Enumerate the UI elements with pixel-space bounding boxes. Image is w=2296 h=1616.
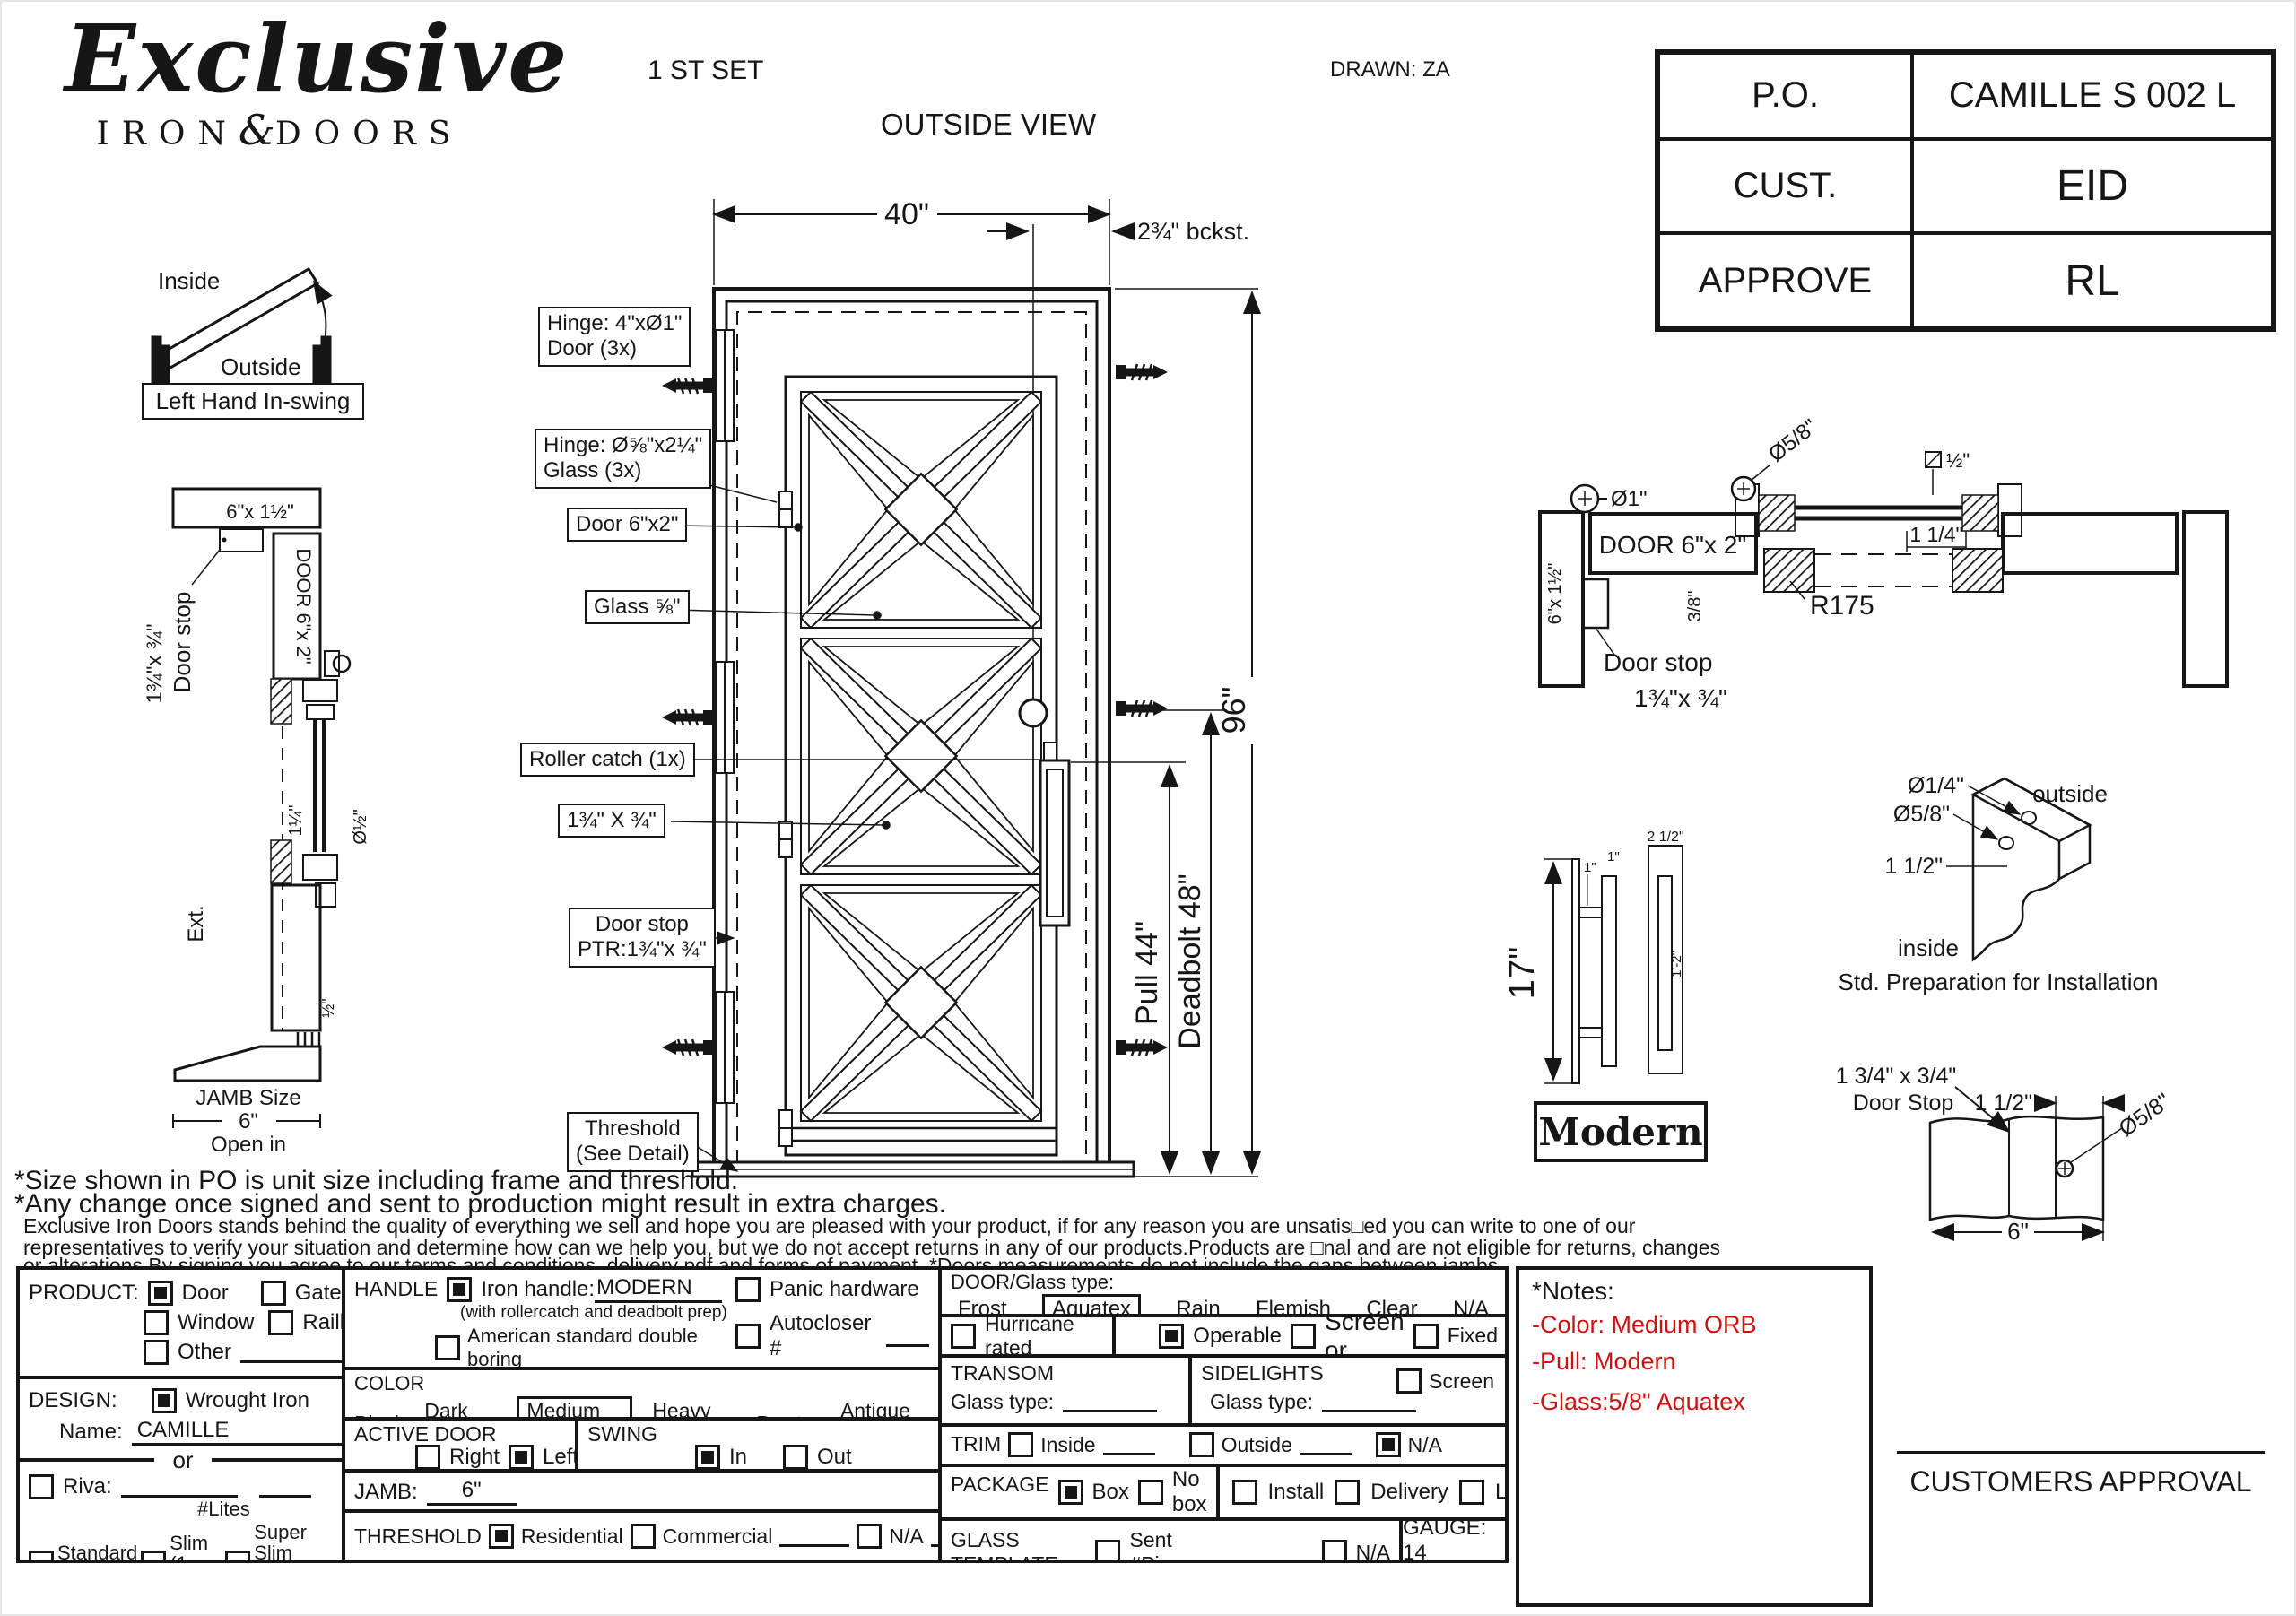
riva-label: Riva: — [63, 1474, 112, 1499]
left-jamb-section: 6"x 1½" Door stop 1¾"x ¾" DOOR 6"x 2" 1¼… — [143, 489, 370, 1157]
sidelights-glass-field[interactable] — [1322, 1392, 1416, 1412]
product-gate-label: Gate — [295, 1281, 342, 1306]
template-sent-field[interactable] — [1234, 1542, 1313, 1563]
hinge-door-line2: Door (3x) — [547, 336, 682, 361]
head-radius-label: R175 — [1810, 591, 1874, 621]
prep-detail: Ø1/4" Ø5/8" 1 1/2" outside inside Std. P… — [1839, 773, 2159, 995]
note-color: -Color: Medium ORB — [1532, 1311, 1857, 1339]
head-114-dim: 1 1/4" — [1909, 523, 1962, 546]
color-section: COLOR Black Dark ORB Medium ORB Heavy OR… — [342, 1367, 942, 1421]
product-section: PRODUCT: Door Gate Window Railling Other — [16, 1266, 345, 1379]
product-other-label: Other — [178, 1340, 231, 1365]
drawing-sheet: Exclusive IRON&DOORS 1 ST SET OUTSIDE VI… — [0, 0, 2296, 1616]
checkbox-screen[interactable] — [1291, 1324, 1316, 1349]
stopdetail-112: 1 1/2" — [1975, 1090, 2032, 1116]
glass-type-label: DOOR/Glass type: — [951, 1271, 1496, 1294]
gauge-section: GAUGE: 14 — [1399, 1517, 1509, 1563]
head-half-label: ½" — [1946, 449, 1970, 472]
super-slim-option: Super Slim(1/2”) SDL — [254, 1522, 333, 1563]
note-line-3: Exclusive Iron Doors stands behind the q… — [23, 1214, 1635, 1238]
swing-in-label: In — [729, 1445, 747, 1470]
product-window-label: Window — [178, 1310, 254, 1335]
jamb-value[interactable]: 6" — [427, 1478, 517, 1506]
prep-d14-label: Ø1/4" — [1908, 773, 1964, 798]
open-in-label: Open in — [211, 1133, 286, 1157]
jamb-size-label: JAMB Size — [196, 1086, 300, 1110]
head-38-dim: 3/8" — [1685, 591, 1705, 622]
swing-outside-label: Outside — [221, 353, 301, 380]
design-name-value[interactable]: CAMILLE — [132, 1418, 345, 1446]
checkbox-product-door[interactable] — [148, 1281, 173, 1306]
checkbox-trim-na[interactable] — [1376, 1432, 1401, 1457]
package-install-label: Install — [1268, 1480, 1325, 1505]
checkbox-package-box[interactable] — [1058, 1480, 1083, 1505]
checkbox-template-sent[interactable] — [1095, 1540, 1120, 1563]
handle-sub-note: (with rollercatch and deadbolt prep) — [460, 1303, 727, 1323]
head-door-size: DOOR 6"x 2" — [1599, 531, 1747, 559]
trim-outside-label: Outside — [1222, 1433, 1292, 1457]
package-delivery-label: Delivery — [1370, 1480, 1448, 1505]
swing-diagram: Inside Outside — [152, 267, 330, 386]
left-half-dim: ½" — [319, 998, 337, 1017]
trim-inside-field[interactable] — [1103, 1435, 1155, 1455]
design-wrought-label: Wrought Iron — [186, 1388, 309, 1413]
product-railling-label: Railling — [302, 1310, 345, 1335]
standard-option: Standard(1 1/2”) — [57, 1542, 137, 1563]
swing-out-label: Out — [817, 1445, 852, 1470]
product-label: PRODUCT: — [29, 1281, 139, 1306]
head-doorstop-label: Door stop — [1604, 648, 1712, 676]
glass-template-section: GLASS TEMPLATE Sent #Pieces: N/A — [938, 1517, 1403, 1563]
autocloser-label: Autocloser # — [770, 1311, 877, 1361]
autocloser-field[interactable] — [886, 1326, 929, 1347]
checkbox-package-delivery[interactable] — [1335, 1480, 1360, 1505]
callout-hinge-glass: Hinge: Ø⅝"x2¼" Glass (3x) — [535, 429, 711, 489]
package-box-label: Box — [1092, 1480, 1129, 1505]
package-ltl-label: LTL — [1495, 1480, 1509, 1505]
trim-outside-field[interactable] — [1300, 1435, 1352, 1455]
left-ext-label: Ext. — [184, 905, 208, 942]
threshold-section: THRESHOLD Residential Commercial N/A — [342, 1509, 942, 1563]
head-doorstop-size: 1¾"x ¾" — [1634, 684, 1727, 712]
trim-na-label: N/A — [1408, 1433, 1442, 1457]
glass-type-section: DOOR/Glass type: Frost Aquatex Rain Flem… — [938, 1266, 1509, 1317]
prep-112-label: 1 1/2" — [1885, 854, 1943, 879]
head-d1-label: Ø1" — [1611, 487, 1648, 511]
backset-dim: 2¾" bckst. — [1137, 218, 1249, 245]
pull-height-label: 17" — [1502, 947, 1542, 1000]
stopdetail-d58: Ø5/8" — [2115, 1089, 2176, 1142]
callout-roller-catch: Roller catch (1x) — [520, 743, 695, 777]
active-door-label: ACTIVE DOOR — [354, 1422, 566, 1447]
threshold-na-label: N/A — [889, 1525, 923, 1549]
callout-door-size: Door 6"x2" — [567, 508, 687, 542]
prep-caption: Std. Preparation for Installation — [1839, 969, 2159, 995]
template-sent-label: Sent #Pieces: — [1129, 1528, 1224, 1563]
trim-label: TRIM — [951, 1432, 1001, 1456]
door-elevation: 40" 2¾" bckst. — [662, 197, 1258, 1177]
left-head-size: 6"x 1½" — [226, 500, 294, 523]
transom-label: TRANSOM — [951, 1361, 1179, 1386]
template-na-label: N/A — [1356, 1541, 1390, 1564]
deadbolt-height-dim: Deadbolt 48" — [1173, 873, 1207, 1048]
stopdetail-title2: Door Stop — [1853, 1090, 1954, 1116]
left-dim-d12: Ø½" — [351, 809, 370, 844]
panic-hardware-label: Panic hardware — [770, 1277, 919, 1302]
standard-size: (1 1/2”) — [57, 1562, 121, 1563]
head-section: Ø1" DOOR 6"x 2" Ø5/8" ½" 1 1/4" — [1540, 414, 2227, 712]
doorstop-detail: 1 1/2" Ø5/8" 6" 1 3/4" x 3/4" Door Stop — [1836, 1064, 2176, 1245]
trim-section: TRIM Inside Outside N/A — [938, 1423, 1509, 1467]
active-left-label: Left — [543, 1445, 578, 1470]
sidelights-screen-label: Screen — [1429, 1369, 1494, 1394]
swing-inside-label: Inside — [158, 267, 220, 294]
pull-model-name: Modern — [1534, 1101, 1708, 1162]
checkbox-package-install[interactable] — [1232, 1480, 1257, 1505]
checkbox-iron-handle[interactable] — [447, 1277, 472, 1302]
package-nobox-label: No box — [1172, 1467, 1207, 1517]
swing-caption: Left Hand In-swing — [142, 383, 364, 420]
head-d58-label: Ø5/8" — [1764, 414, 1822, 467]
slim-label: Slim — [170, 1532, 208, 1554]
design-name-label: Name: — [59, 1420, 123, 1445]
notes-box: *Notes: -Color: Medium ORB -Pull: Modern… — [1516, 1266, 1873, 1607]
riva-field-2[interactable] — [259, 1477, 311, 1498]
threshold-residential-label: Residential — [521, 1525, 623, 1549]
handle-label: HANDLE — [354, 1277, 438, 1301]
american-boring-label: American standard double boring — [467, 1325, 735, 1370]
left-doorstop-size: 1¾"x ¾" — [143, 623, 167, 703]
checkbox-product-window[interactable] — [143, 1310, 169, 1335]
stopdetail-6: 6" — [2007, 1218, 2029, 1245]
threshold-line2: (See Detail) — [576, 1142, 690, 1167]
iron-handle-value[interactable]: MODERN — [595, 1275, 722, 1303]
transom-sidelights-section: TRANSOM Glass type: SIDELIGHTS Glass typ… — [938, 1354, 1509, 1427]
checkbox-trim-outside[interactable] — [1189, 1432, 1214, 1457]
hinge-glass-line1: Hinge: Ø⅝"x2¼" — [544, 433, 702, 458]
prep-outside-label: outside — [2032, 780, 2108, 807]
threshold-commercial-field[interactable] — [779, 1526, 849, 1547]
jamb-label: JAMB: — [354, 1480, 418, 1505]
checkbox-hurricane[interactable] — [951, 1324, 976, 1349]
design-label: DESIGN: — [29, 1388, 117, 1413]
prep-d58-label: Ø5/8" — [1893, 802, 1950, 827]
threshold-line1: Threshold — [576, 1116, 690, 1142]
package-section: PACKAGE Box No box Install Delivery LTL — [938, 1464, 1509, 1521]
slim-option: Slim(1 1/4”) — [170, 1533, 222, 1563]
checkbox-swing-out[interactable] — [783, 1445, 808, 1470]
active-swing-section: ACTIVE DOOR Right Left SWING In Out — [342, 1417, 942, 1473]
checkbox-active-right[interactable] — [415, 1445, 440, 1470]
product-other-field[interactable] — [240, 1342, 345, 1363]
left-door-size: DOOR 6"x 2" — [292, 548, 315, 664]
riva-field[interactable] — [121, 1477, 238, 1498]
checkbox-product-gate[interactable] — [261, 1281, 286, 1306]
checkbox-design-wrought-iron[interactable] — [152, 1388, 177, 1413]
checkbox-product-railling[interactable] — [268, 1310, 293, 1335]
fixed-label: Fixed — [1448, 1324, 1498, 1348]
jamb-size-value: 6" — [239, 1109, 258, 1134]
threshold-label: THRESHOLD — [354, 1525, 482, 1549]
hurricane-operable-section: Hurricane rated Operable Screen or Fixed — [938, 1314, 1509, 1358]
operable-label: Operable — [1193, 1324, 1282, 1349]
super-slim-label: Super Slim — [254, 1521, 307, 1563]
checkbox-threshold-na[interactable] — [857, 1524, 882, 1549]
checkbox-swing-in[interactable] — [695, 1445, 720, 1470]
trim-inside-label: Inside — [1040, 1433, 1095, 1457]
callout-door-stop: Door stop PTR:1¾"x ¾" — [569, 908, 716, 968]
product-door-label: Door — [182, 1281, 229, 1306]
pull-height-dim: Pull 44" — [1130, 921, 1164, 1025]
transom-glass-field[interactable] — [1063, 1392, 1157, 1412]
screen-or-label: Screen or — [1325, 1314, 1405, 1358]
callout-threshold: Threshold (See Detail) — [567, 1112, 699, 1172]
iron-handle-label: Iron handle: — [481, 1277, 595, 1302]
pull-detail: 17" 1" 1" 2 1/2" 1'-2" — [1502, 830, 1684, 1083]
left-dim-114: 1¼" — [286, 805, 306, 837]
checkbox-fixed[interactable] — [1413, 1324, 1439, 1349]
handle-section: HANDLE Iron handle:MODERN (with rollerca… — [342, 1266, 942, 1370]
checkbox-riva[interactable] — [29, 1474, 54, 1499]
door-stop-line1: Door stop — [578, 912, 707, 937]
gauge-value: GAUGE: 14 — [1403, 1517, 1505, 1563]
glass-template-label: GLASS TEMPLATE — [951, 1528, 1086, 1563]
checkbox-product-other[interactable] — [143, 1340, 169, 1365]
color-label: COLOR — [354, 1372, 929, 1395]
lites-label: #Lites — [197, 1498, 250, 1521]
checkbox-sidelights-screen[interactable] — [1396, 1368, 1422, 1394]
approval-signature-line[interactable] — [1897, 1451, 2265, 1454]
hurricane-label: Hurricane rated — [985, 1314, 1103, 1358]
checkbox-autocloser[interactable] — [735, 1324, 761, 1349]
stopdetail-title1: 1 3/4" x 3/4" — [1836, 1064, 1957, 1089]
package-label: PACKAGE — [951, 1473, 1049, 1497]
note-glass: -Glass:5/8" Aquatex — [1532, 1388, 1857, 1416]
callout-hinge-door: Hinge: 4"xØ1" Door (3x) — [538, 307, 691, 367]
transom-glass-label: Glass type: — [951, 1390, 1054, 1414]
door-width-dim: 40" — [884, 197, 929, 231]
standard-label: Standard — [57, 1542, 137, 1563]
checkbox-super-slim[interactable] — [225, 1551, 250, 1563]
pull-inner-dim: 1'-2" — [1669, 951, 1684, 977]
checkbox-standard[interactable] — [29, 1551, 54, 1563]
callout-glass-size: Glass ⅝" — [585, 590, 690, 624]
notes-title: *Notes: — [1532, 1277, 1857, 1306]
checkbox-threshold-residential[interactable] — [489, 1524, 514, 1549]
left-doorstop-label: Door stop — [169, 592, 196, 693]
design-or-label: or — [154, 1446, 212, 1474]
door-stop-line2: PTR:1¾"x ¾" — [578, 937, 707, 962]
checkbox-threshold-commercial[interactable] — [631, 1524, 656, 1549]
checkbox-package-ltl[interactable] — [1459, 1480, 1484, 1505]
sidelights-glass-label: Glass type: — [1210, 1390, 1313, 1414]
prep-inside-label: inside — [1898, 934, 1959, 961]
note-pull: -Pull: Modern — [1532, 1348, 1857, 1376]
checkbox-slim[interactable] — [141, 1551, 166, 1563]
checkbox-operable[interactable] — [1159, 1324, 1184, 1349]
jamb-section: JAMB: 6" — [342, 1469, 942, 1513]
approval-label: CUSTOMERS APPROVAL — [1883, 1465, 2278, 1499]
checkbox-trim-inside[interactable] — [1008, 1432, 1033, 1457]
checkbox-package-nobox[interactable] — [1138, 1480, 1163, 1505]
checkbox-american-boring[interactable] — [435, 1335, 460, 1360]
pull-dim-1b: 1" — [1607, 849, 1620, 864]
pull-dim-1a: 1" — [1584, 860, 1596, 875]
super-slim-size: (1/2”) SDL — [254, 1562, 301, 1563]
hinge-door-line1: Hinge: 4"xØ1" — [547, 311, 682, 336]
checkbox-active-left[interactable] — [509, 1445, 534, 1470]
checkbox-template-na[interactable] — [1322, 1540, 1347, 1563]
swing-label: SWING — [587, 1422, 929, 1447]
hinge-glass-line2: Glass (3x) — [544, 458, 702, 483]
pull-top-dim: 2 1/2" — [1647, 830, 1683, 845]
active-right-label: Right — [449, 1445, 500, 1470]
threshold-commercial-label: Commercial — [663, 1525, 773, 1549]
checkbox-panic-hardware[interactable] — [735, 1277, 761, 1302]
head-jamb-size: 6"x 1½" — [1545, 563, 1565, 625]
callout-bar-size: 1¾" X ¾" — [558, 804, 665, 838]
